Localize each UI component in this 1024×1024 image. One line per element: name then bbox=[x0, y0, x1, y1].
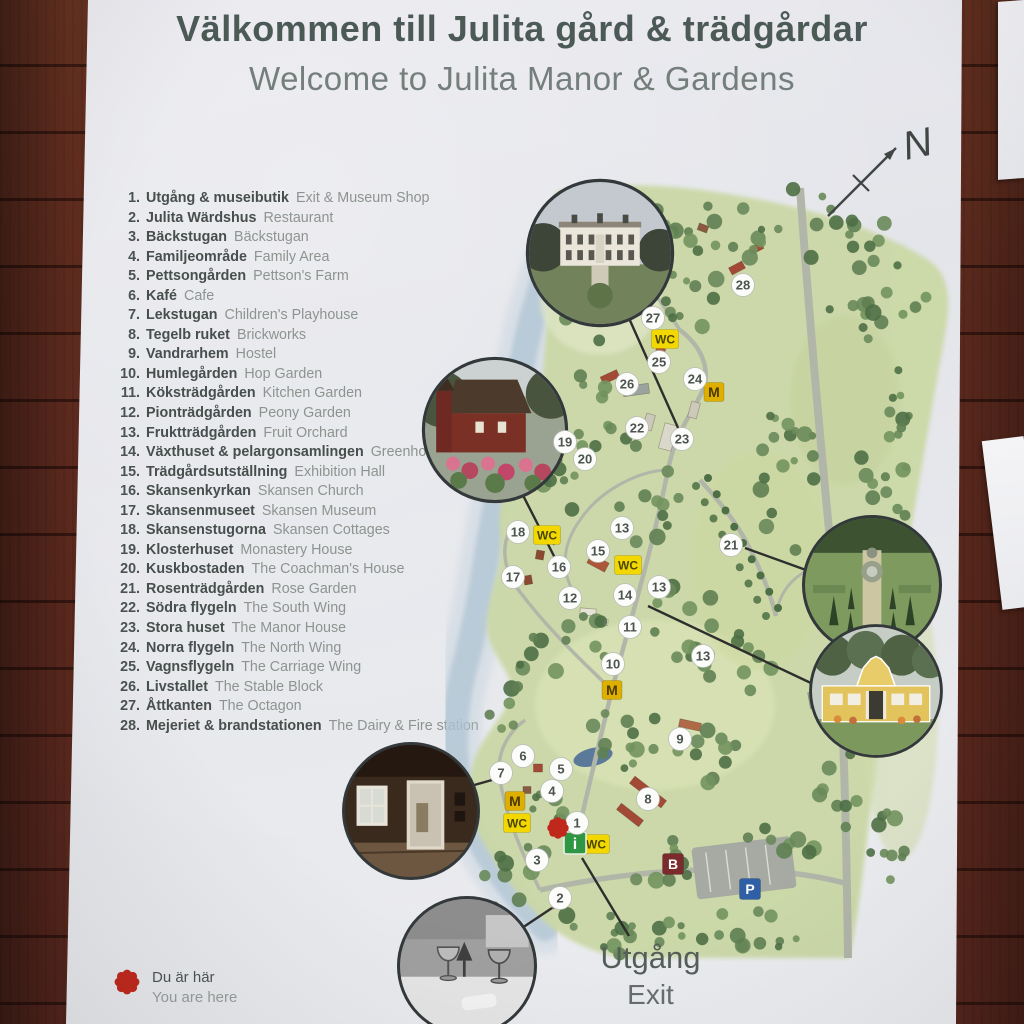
tree bbox=[606, 912, 615, 921]
building bbox=[643, 413, 656, 431]
marker-circle bbox=[611, 517, 634, 540]
tree bbox=[692, 482, 700, 490]
map-marker-28: 28 bbox=[732, 274, 755, 297]
you-are-here-map-marker bbox=[547, 817, 568, 838]
legend-en: The Stable Block bbox=[215, 679, 323, 695]
marker-circle bbox=[626, 417, 649, 440]
tree bbox=[865, 304, 882, 321]
tree bbox=[891, 620, 907, 636]
tree bbox=[890, 532, 900, 542]
legend-sv: Växthuset & pelargonsamlingen bbox=[146, 444, 364, 460]
tree bbox=[716, 908, 728, 920]
tree bbox=[503, 680, 520, 697]
tree bbox=[867, 478, 878, 489]
tree bbox=[790, 831, 807, 848]
marker-circle bbox=[692, 645, 715, 668]
tree bbox=[734, 629, 744, 639]
tree bbox=[845, 749, 855, 759]
badge-p: P bbox=[740, 879, 761, 900]
marker-number: 9 bbox=[676, 732, 683, 747]
tree bbox=[547, 791, 562, 806]
tree bbox=[667, 225, 679, 237]
map-markers: 2827252624222319201813151617121413111013… bbox=[490, 274, 755, 910]
marker-number: 1 bbox=[573, 816, 580, 831]
marker-number: 12 bbox=[563, 591, 577, 606]
tree bbox=[565, 502, 580, 517]
tree bbox=[669, 849, 682, 862]
marker-circle bbox=[554, 431, 577, 454]
tree bbox=[541, 283, 548, 290]
tree bbox=[898, 853, 906, 861]
tree bbox=[509, 720, 518, 729]
tree bbox=[887, 810, 903, 826]
legend-en: Hop Garden bbox=[244, 366, 322, 382]
legend-item: 1.Utgång & museibutikExit & Museum Shop bbox=[114, 189, 459, 209]
legend-sv: Fruktträdgården bbox=[146, 425, 256, 441]
legend-sv: Skansenmuseet bbox=[146, 503, 255, 519]
legend-item: 21.RosenträdgårdenRose Garden bbox=[114, 580, 459, 600]
badge-box bbox=[740, 879, 761, 900]
building bbox=[587, 554, 609, 572]
legend-item: 25.VagnsflygelnThe Carriage Wing bbox=[114, 658, 459, 678]
legend-en: Fruit Orchard bbox=[263, 425, 347, 441]
tree bbox=[625, 269, 639, 283]
tree bbox=[697, 657, 711, 671]
map-marker-12: 12 bbox=[559, 587, 582, 610]
tree bbox=[608, 253, 620, 265]
connector-line bbox=[582, 858, 629, 936]
badge-wc: WC bbox=[652, 330, 679, 349]
legend-num: 18. bbox=[114, 521, 140, 541]
building bbox=[729, 261, 746, 275]
marker-number: 16 bbox=[552, 560, 566, 575]
you-are-here-icon bbox=[112, 967, 142, 997]
tree bbox=[753, 596, 761, 604]
badge-wc: WC bbox=[534, 526, 561, 545]
tree bbox=[683, 277, 690, 284]
tree bbox=[485, 710, 495, 720]
legend-item: 13.FruktträdgårdenFruit Orchard bbox=[114, 424, 459, 444]
tree bbox=[663, 521, 672, 530]
tree bbox=[745, 580, 753, 588]
tree bbox=[552, 462, 566, 476]
exit-label-swedish: Utgång bbox=[578, 940, 723, 976]
tree bbox=[574, 429, 584, 439]
tree bbox=[561, 636, 570, 645]
tree bbox=[774, 604, 782, 612]
tree bbox=[776, 843, 792, 859]
legend-en: Greenhouse bbox=[371, 444, 450, 460]
legend-num: 5. bbox=[114, 267, 140, 287]
photo-inset-restaurant bbox=[399, 898, 536, 1024]
tree bbox=[911, 610, 925, 624]
tree bbox=[852, 260, 867, 275]
tree bbox=[689, 642, 704, 657]
you-are-here-petal bbox=[558, 828, 566, 836]
marker-number: 24 bbox=[688, 372, 703, 387]
tree bbox=[765, 588, 773, 596]
legend-num: 6. bbox=[114, 287, 140, 307]
tree bbox=[897, 392, 905, 400]
photo-inset-greenhouse bbox=[811, 626, 948, 757]
tree bbox=[504, 698, 516, 710]
tree bbox=[524, 843, 533, 852]
tree bbox=[662, 220, 670, 228]
you-are-here-swedish: Du är här bbox=[152, 969, 237, 986]
water-shoreline bbox=[455, 270, 548, 928]
badge-box bbox=[534, 526, 561, 545]
badge-box bbox=[615, 556, 642, 575]
tree bbox=[661, 228, 675, 242]
legend-en: Cafe bbox=[184, 288, 214, 304]
tree bbox=[643, 206, 655, 218]
tree bbox=[877, 811, 887, 821]
tree bbox=[661, 583, 676, 598]
legend-num: 3. bbox=[114, 228, 140, 248]
tree bbox=[802, 845, 817, 860]
tree bbox=[639, 269, 646, 276]
tree bbox=[756, 443, 769, 456]
tree bbox=[737, 202, 749, 214]
tree bbox=[678, 932, 686, 940]
tree bbox=[862, 296, 875, 309]
tree bbox=[883, 808, 892, 817]
legend-num: 21. bbox=[114, 580, 140, 600]
tree bbox=[512, 681, 523, 692]
legend-sv: Mejeriet & brandstationen bbox=[146, 718, 322, 734]
tree bbox=[675, 857, 689, 871]
tree bbox=[893, 261, 901, 269]
tree bbox=[786, 182, 800, 196]
tree bbox=[552, 455, 562, 465]
legend-en: Skansen Church bbox=[258, 483, 364, 499]
tree bbox=[736, 563, 744, 571]
tree bbox=[892, 504, 902, 514]
tree bbox=[841, 822, 851, 832]
marker-circle bbox=[619, 616, 642, 639]
tree bbox=[689, 280, 701, 292]
tree bbox=[553, 813, 566, 826]
you-are-here-legend: Du är här You are here bbox=[112, 967, 237, 1006]
tree bbox=[558, 907, 575, 924]
tree bbox=[627, 727, 639, 739]
tree bbox=[523, 863, 540, 880]
legend-item: 6.KaféCafe bbox=[114, 287, 459, 307]
marker-circle bbox=[507, 521, 530, 544]
legend-item: 12.PionträdgårdenPeony Garden bbox=[114, 404, 459, 424]
tree bbox=[846, 215, 858, 227]
legend-en: Children's Playhouse bbox=[225, 307, 359, 323]
tree bbox=[601, 709, 610, 718]
map-marker-13: 13 bbox=[611, 517, 634, 540]
tree bbox=[593, 335, 605, 347]
tree bbox=[535, 476, 552, 493]
legend-sv: Tegelb ruket bbox=[146, 327, 230, 343]
tree bbox=[561, 619, 575, 633]
tree bbox=[592, 268, 605, 281]
legend-sv: Trädgårdsutställning bbox=[146, 464, 287, 480]
tree bbox=[782, 418, 795, 431]
tree bbox=[598, 738, 612, 752]
map-marker-14: 14 bbox=[614, 584, 637, 607]
exit-label-english: Exit bbox=[578, 979, 723, 1011]
tree bbox=[615, 921, 629, 935]
map-marker-7: 7 bbox=[490, 762, 513, 785]
tree bbox=[704, 474, 712, 482]
marker-number: 15 bbox=[591, 544, 605, 559]
tree bbox=[917, 668, 934, 685]
marker-circle bbox=[550, 758, 573, 781]
badge-box bbox=[504, 814, 531, 833]
title-swedish: Välkommen till Julita gård & trädgårdar bbox=[90, 8, 954, 50]
tree bbox=[776, 937, 785, 946]
tree bbox=[684, 227, 693, 236]
building bbox=[534, 764, 543, 772]
building bbox=[594, 618, 608, 625]
legend-sv: Norra flygeln bbox=[146, 640, 234, 656]
legend-item: 5.PettsongårdenPettson's Farm bbox=[114, 267, 459, 287]
marker-circle bbox=[642, 307, 665, 330]
pond bbox=[571, 743, 614, 770]
tree bbox=[600, 390, 607, 397]
legend-sv: Kuskbostaden bbox=[146, 561, 245, 577]
tree bbox=[895, 462, 910, 477]
legend-num: 15. bbox=[114, 463, 140, 483]
tree bbox=[532, 793, 540, 801]
tree bbox=[763, 661, 778, 676]
tree bbox=[494, 851, 506, 863]
tree bbox=[711, 241, 721, 251]
tree bbox=[663, 874, 676, 887]
tree bbox=[562, 302, 570, 310]
legend-num: 10. bbox=[114, 365, 140, 385]
tree bbox=[767, 508, 778, 519]
marker-number: 7 bbox=[497, 766, 504, 781]
tree bbox=[707, 292, 720, 305]
legend-num: 13. bbox=[114, 424, 140, 444]
tree bbox=[649, 529, 666, 546]
badge-letter: P bbox=[745, 881, 754, 897]
tree bbox=[884, 407, 895, 418]
tree bbox=[792, 427, 799, 434]
tree bbox=[652, 598, 662, 608]
tree bbox=[589, 440, 601, 452]
legend-item: 20.KuskbostadenThe Coachman's House bbox=[114, 560, 459, 580]
exit-label: Utgång Exit bbox=[578, 940, 723, 1011]
tree bbox=[759, 473, 770, 484]
building bbox=[622, 383, 649, 397]
tree bbox=[536, 791, 544, 799]
badge-letter: i bbox=[573, 836, 577, 853]
tree bbox=[664, 579, 680, 595]
map-marker-3: 3 bbox=[526, 849, 549, 872]
tree bbox=[691, 735, 705, 749]
legend-num: 26. bbox=[114, 678, 140, 698]
you-are-here-petal bbox=[554, 817, 562, 825]
legend-en: Family Area bbox=[254, 249, 329, 265]
tree bbox=[751, 231, 766, 246]
badge-b: B bbox=[663, 854, 684, 875]
legend-sv: Kafé bbox=[146, 288, 177, 304]
badge-letter: WC bbox=[537, 528, 557, 542]
tree bbox=[663, 917, 675, 929]
badge-letter: M bbox=[708, 384, 720, 400]
you-are-here-petal bbox=[549, 819, 557, 827]
tree bbox=[743, 642, 754, 653]
map-marker-27: 27 bbox=[642, 307, 665, 330]
tree bbox=[649, 713, 661, 725]
marker-circle bbox=[637, 788, 660, 811]
tree bbox=[629, 759, 637, 767]
marker-number: 13 bbox=[615, 521, 629, 536]
tree bbox=[520, 469, 536, 485]
legend-item: 26.LivstalletThe Stable Block bbox=[114, 678, 459, 698]
map-marker-4: 4 bbox=[541, 780, 564, 803]
marker-number: 22 bbox=[630, 421, 644, 436]
legend-item: 23.Stora husetThe Manor House bbox=[114, 619, 459, 639]
legend-en: Exit & Museum Shop bbox=[296, 190, 430, 206]
tree bbox=[722, 507, 730, 515]
tree bbox=[784, 429, 797, 442]
map-marker-2: 2 bbox=[549, 887, 572, 910]
tree bbox=[896, 423, 906, 433]
marker-circle bbox=[502, 566, 525, 589]
tree bbox=[670, 844, 679, 853]
marker-number: 14 bbox=[618, 588, 633, 603]
marker-circle bbox=[549, 887, 572, 910]
legend-item: 28.Mejeriet & brandstationenThe Dairy & … bbox=[114, 717, 459, 737]
marker-number: 3 bbox=[533, 853, 540, 868]
tree bbox=[548, 447, 558, 457]
marker-number: 5 bbox=[557, 762, 564, 777]
map-marker-13: 13 bbox=[692, 645, 715, 668]
tree bbox=[630, 873, 642, 885]
tree bbox=[529, 633, 538, 642]
legend-item: 18.SkansenstugornaSkansen Cottages bbox=[114, 521, 459, 541]
tree bbox=[673, 493, 683, 503]
badge-box bbox=[505, 792, 525, 811]
map-sign-board: Välkommen till Julita gård & trädgårdar … bbox=[0, 0, 1024, 1024]
tree bbox=[766, 412, 775, 421]
tree bbox=[630, 440, 642, 452]
map-marker-5: 5 bbox=[550, 758, 573, 781]
tree bbox=[579, 307, 586, 314]
tree bbox=[878, 683, 889, 694]
tree bbox=[526, 862, 536, 872]
marker-number: 17 bbox=[506, 570, 520, 585]
building bbox=[750, 242, 764, 254]
badge-box bbox=[583, 835, 610, 854]
tree bbox=[579, 381, 587, 389]
photo-connector-lines bbox=[446, 316, 813, 940]
tree bbox=[735, 938, 751, 954]
photo-inset-manor bbox=[519, 181, 681, 326]
tree bbox=[719, 756, 732, 769]
tree bbox=[806, 840, 822, 856]
legend-num: 4. bbox=[114, 248, 140, 268]
legend-num: 27. bbox=[114, 697, 140, 717]
tree bbox=[628, 922, 636, 930]
tree bbox=[685, 651, 695, 661]
legend-sv: Pettsongården bbox=[146, 268, 246, 284]
tree bbox=[556, 806, 569, 819]
connector-line bbox=[506, 462, 556, 560]
legend-num: 7. bbox=[114, 306, 140, 326]
tree bbox=[651, 495, 663, 507]
legend-num: 17. bbox=[114, 502, 140, 522]
legend-item: 24.Norra flygelnThe North Wing bbox=[114, 639, 459, 659]
badge-letter: M bbox=[606, 682, 618, 698]
marker-circle bbox=[541, 780, 564, 803]
tree bbox=[537, 846, 545, 854]
tree bbox=[895, 412, 910, 427]
map-marker-15: 15 bbox=[587, 540, 610, 563]
badge-letter: WC bbox=[655, 332, 675, 346]
marker-circle bbox=[548, 556, 571, 579]
tree bbox=[595, 615, 608, 628]
marker-circle bbox=[490, 762, 513, 785]
badge-box bbox=[663, 854, 684, 875]
tree bbox=[730, 523, 738, 531]
tree bbox=[831, 800, 843, 812]
marker-number: 26 bbox=[620, 377, 634, 392]
tree bbox=[682, 601, 697, 616]
marker-circle bbox=[587, 540, 610, 563]
tree bbox=[576, 440, 588, 452]
marker-number: 27 bbox=[646, 311, 660, 326]
marker-number: 21 bbox=[724, 538, 738, 553]
tree bbox=[864, 241, 875, 252]
photo-inset-rose-garden bbox=[804, 517, 941, 654]
tree bbox=[661, 296, 671, 306]
building bbox=[678, 719, 701, 731]
tree bbox=[894, 366, 902, 374]
tree bbox=[873, 571, 888, 586]
tree bbox=[817, 783, 829, 795]
legend-en: The Manor House bbox=[232, 620, 346, 636]
tree bbox=[769, 432, 780, 443]
legend-item: 14.Växthuset & pelargonsamlingenGreenhou… bbox=[114, 443, 459, 463]
legend-en: Hostel bbox=[236, 346, 277, 362]
tree bbox=[529, 805, 536, 812]
marker-circle bbox=[526, 849, 549, 872]
tree bbox=[665, 307, 676, 318]
badge-box bbox=[564, 832, 586, 854]
tree bbox=[886, 875, 895, 884]
tree bbox=[840, 800, 852, 812]
tree bbox=[759, 519, 774, 534]
tree bbox=[703, 202, 712, 211]
tree bbox=[810, 218, 824, 232]
tree bbox=[586, 719, 600, 733]
legend-en: Kitchen Garden bbox=[263, 385, 362, 401]
tree bbox=[516, 661, 524, 669]
legend-item: 10.HumlegårdenHop Garden bbox=[114, 365, 459, 385]
building bbox=[658, 423, 677, 451]
legend-num: 28. bbox=[114, 717, 140, 737]
map-marker-6: 6 bbox=[512, 745, 535, 768]
tree bbox=[748, 555, 756, 563]
sign-header: Välkommen till Julita gård & trädgårdar … bbox=[90, 8, 954, 98]
legend-item: 17.SkansenmuseetSkansen Museum bbox=[114, 502, 459, 522]
tree bbox=[804, 250, 819, 265]
building bbox=[688, 401, 701, 419]
legend-num: 22. bbox=[114, 599, 140, 619]
legend-en: Restaurant bbox=[263, 210, 333, 226]
julita-map-sign-photo: Välkommen till Julita gård & trädgårdar … bbox=[0, 0, 1024, 1024]
legend-sv: Humlegården bbox=[146, 366, 237, 382]
marker-number: 4 bbox=[548, 784, 556, 799]
